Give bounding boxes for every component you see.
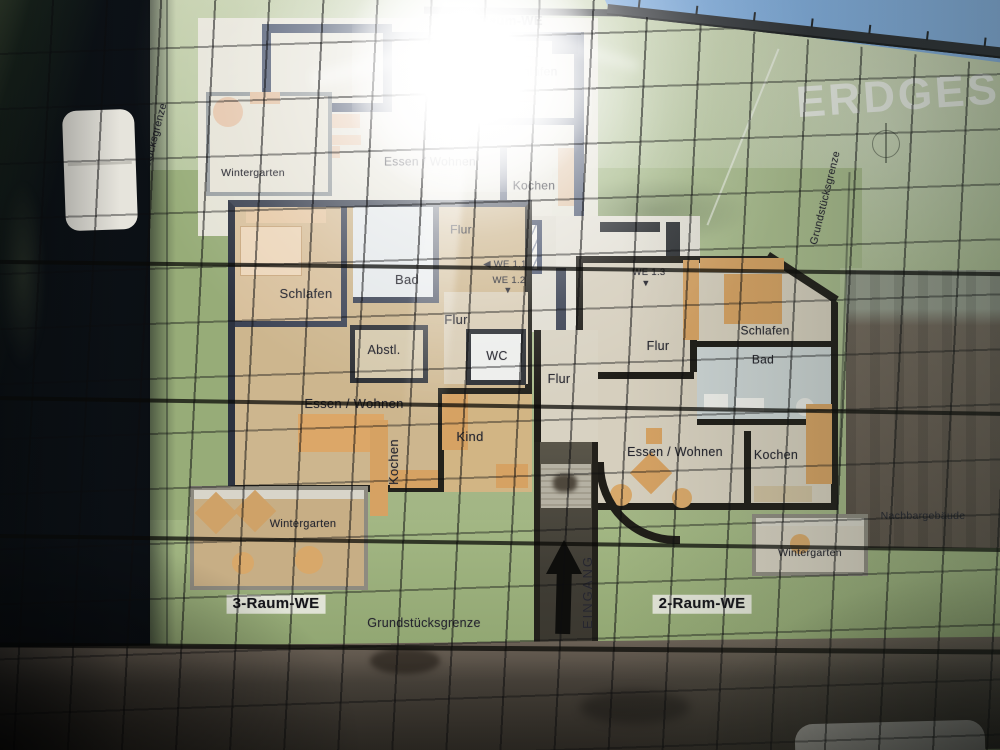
photo-of-floorplan-banner: ERDGESC	[0, 0, 1000, 750]
sun-core	[352, 0, 592, 192]
